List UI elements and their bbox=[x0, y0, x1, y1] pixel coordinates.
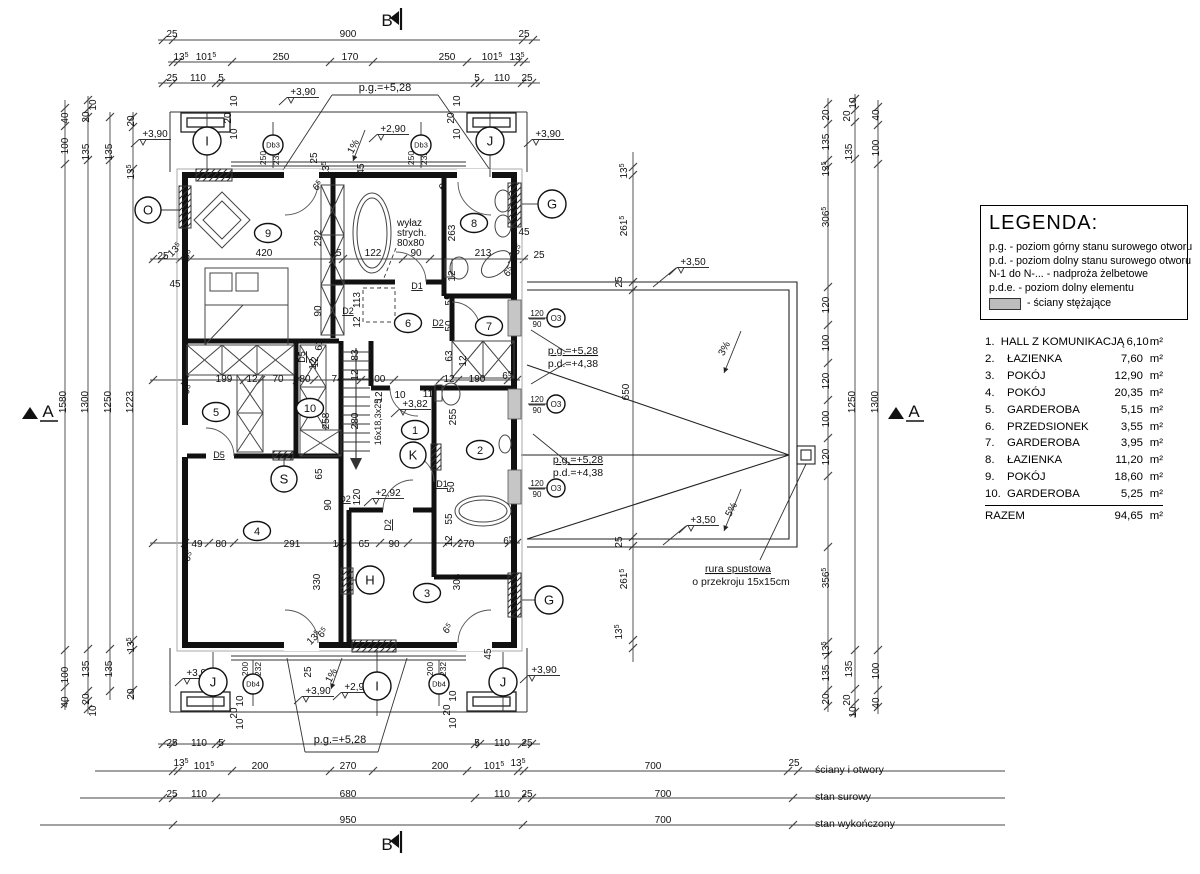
dim-label: 10 bbox=[235, 718, 246, 730]
dim-label: 650 bbox=[621, 383, 632, 400]
svg-text:B: B bbox=[381, 835, 392, 854]
dim-label: 200 bbox=[432, 761, 449, 772]
dim-label: stan wykończony bbox=[815, 818, 896, 830]
svg-text:J: J bbox=[487, 134, 494, 149]
dim-label: D2 bbox=[339, 494, 351, 504]
dim-label: 90 bbox=[313, 305, 324, 317]
dim-label: p.g.=+5,28 bbox=[314, 734, 367, 746]
bracing-walls-gray bbox=[508, 300, 521, 504]
dim-label: 45 bbox=[483, 648, 494, 660]
level-flag-icon bbox=[520, 676, 560, 684]
dim-label: +2,90 bbox=[380, 124, 406, 135]
room-number-9: 9 bbox=[255, 224, 282, 243]
dim-label: 90 bbox=[410, 248, 422, 259]
level-flag-icon bbox=[131, 140, 171, 148]
dim-label: 113 bbox=[352, 292, 363, 308]
dim-label: 15 bbox=[332, 539, 344, 550]
dim-label: 100 bbox=[871, 139, 882, 156]
dim-label: 90 bbox=[388, 539, 400, 550]
dim-label: 100 bbox=[821, 334, 832, 351]
svg-text:9: 9 bbox=[265, 228, 271, 240]
svg-text:8: 8 bbox=[471, 218, 477, 230]
dim-label: 250 bbox=[439, 52, 456, 63]
dim-label: 258 bbox=[321, 412, 332, 429]
dim-label: p.g.=+5,28 bbox=[553, 454, 603, 466]
svg-text:J: J bbox=[210, 675, 217, 690]
dim-label: 420 bbox=[256, 248, 273, 259]
dim-label: 1% bbox=[346, 138, 363, 156]
dim-label: 12 bbox=[444, 535, 455, 547]
dim-label: +3,50 bbox=[680, 257, 706, 268]
dim-label: 135 bbox=[510, 758, 525, 769]
dim-label: 135 bbox=[104, 660, 115, 677]
dim-label: 135 bbox=[844, 660, 855, 677]
room-number-10: 10 bbox=[297, 399, 324, 418]
dim-label: 1223 bbox=[125, 390, 136, 413]
dim-label: 20 bbox=[842, 694, 853, 706]
dim-label: 25 bbox=[166, 73, 178, 84]
level-flag-icon bbox=[391, 410, 431, 418]
dim-label: 120 bbox=[821, 296, 832, 313]
dim-label: 110 bbox=[191, 789, 207, 800]
dim-label: 12 bbox=[447, 270, 458, 282]
dim-label: 200 bbox=[425, 662, 435, 676]
svg-text:4: 4 bbox=[254, 526, 260, 538]
dim-label: 25 bbox=[521, 73, 533, 84]
dim-label: 55 bbox=[444, 513, 455, 525]
dim-label: 12 bbox=[443, 374, 455, 385]
svg-text:6: 6 bbox=[405, 318, 411, 330]
dim-label: 1300 bbox=[80, 390, 91, 413]
room-area-table: 1.HALL Z KOMUNIKACJĄ6,10m²2.ŁAZIENKA7,60… bbox=[985, 334, 1163, 525]
dim-label: +3,82 bbox=[402, 399, 428, 410]
svg-text:120: 120 bbox=[530, 309, 544, 318]
svg-text:B: B bbox=[381, 11, 392, 30]
dim-label: 25 bbox=[309, 152, 320, 164]
section-marker-b: B bbox=[381, 831, 401, 854]
dim-label: 5 bbox=[218, 73, 224, 84]
dim-label: 900 bbox=[340, 29, 357, 40]
table-row: 5.GARDEROBA5,15m² bbox=[985, 402, 1163, 419]
dim-label: 20 bbox=[229, 707, 240, 719]
svg-text:A: A bbox=[42, 402, 54, 421]
dim-label: 120 bbox=[821, 372, 832, 389]
svg-text:90: 90 bbox=[533, 490, 542, 499]
dim-label: 10 bbox=[88, 99, 99, 111]
marker-g: G bbox=[522, 586, 563, 614]
dim-label: 25 bbox=[788, 758, 800, 769]
dim-label: 3% bbox=[717, 340, 734, 358]
dim-label: 5 bbox=[474, 738, 480, 749]
dim-label: 20 bbox=[442, 704, 453, 716]
dim-label: 1015 bbox=[484, 761, 505, 772]
dim-label: 200 bbox=[252, 761, 269, 772]
svg-text:120: 120 bbox=[530, 395, 544, 404]
marker-o3: O312090 bbox=[528, 479, 565, 499]
dim-chain bbox=[629, 152, 637, 662]
dim-label: D1 bbox=[411, 281, 423, 291]
dim-label: 291 bbox=[284, 539, 301, 550]
dim-label: 74 bbox=[331, 374, 343, 385]
dim-label: 135 bbox=[509, 52, 524, 63]
svg-text:120: 120 bbox=[530, 479, 544, 488]
dim-label: 10 bbox=[452, 128, 463, 140]
marker-s: S bbox=[271, 457, 297, 492]
dim-label: 135 bbox=[619, 163, 630, 178]
dim-label: 55 bbox=[444, 294, 455, 306]
dim-label: 120 bbox=[821, 448, 832, 465]
dim-label: 330 bbox=[312, 573, 323, 590]
dim-label: 190 bbox=[469, 374, 486, 385]
dim-label: 303 bbox=[452, 573, 463, 590]
marker-o3: O312090 bbox=[528, 309, 565, 329]
dim-label: 80 bbox=[299, 374, 311, 385]
dim-label: 12 bbox=[246, 374, 258, 385]
svg-text:O3: O3 bbox=[551, 400, 562, 409]
dim-label: 5 bbox=[218, 738, 224, 749]
dim-label: 10 bbox=[448, 717, 459, 729]
dim-label: 10 bbox=[448, 690, 459, 702]
dim-label: 120 bbox=[352, 488, 363, 505]
dim-label: 292 bbox=[313, 229, 324, 246]
dim-label: 45 bbox=[356, 163, 367, 175]
dim-label: 80 bbox=[215, 539, 227, 550]
dim-label: 12 bbox=[458, 355, 469, 367]
svg-text:G: G bbox=[547, 197, 557, 212]
room-number-1: 1 bbox=[402, 421, 429, 440]
dim-label: 199 bbox=[216, 374, 233, 385]
dim-label: 25 bbox=[166, 29, 178, 40]
marker-o3: O312090 bbox=[528, 395, 565, 415]
total-label: RAZEM bbox=[985, 508, 1109, 525]
dim-label: 20 bbox=[126, 115, 137, 127]
dim-label: 20 bbox=[842, 110, 853, 122]
svg-text:H: H bbox=[365, 573, 374, 588]
dim-label: 135 bbox=[614, 624, 625, 639]
room-number-6: 6 bbox=[395, 314, 422, 333]
floor-plan-page: 2590025135101525017025010151352511055110… bbox=[0, 0, 1200, 874]
dim-label: 10 bbox=[848, 706, 859, 718]
dim-label: D5 bbox=[213, 450, 225, 460]
dim-label: 170 bbox=[342, 52, 359, 63]
dim-label: 20 bbox=[126, 688, 137, 700]
table-row: 6.PRZEDSIONEK3,55m² bbox=[985, 419, 1163, 436]
table-row: 8.ŁAZIENKA11,20m² bbox=[985, 452, 1163, 469]
section-marker-b: B bbox=[381, 8, 401, 30]
svg-text:5: 5 bbox=[213, 407, 219, 419]
dim-label: 110 bbox=[494, 73, 510, 84]
dim-label: 1015 bbox=[196, 52, 217, 63]
dim-label: 45 bbox=[169, 279, 181, 290]
dim-label: 2615 bbox=[619, 216, 630, 237]
dim-label: 100 bbox=[60, 137, 71, 154]
total-area: 94,65 bbox=[1109, 508, 1143, 525]
dim-label: 213 bbox=[475, 248, 492, 259]
dim-label: 255 bbox=[448, 408, 459, 425]
dim-label: 65 bbox=[358, 539, 370, 550]
dim-label: +2,92 bbox=[375, 488, 401, 499]
svg-text:90: 90 bbox=[533, 320, 542, 329]
dim-label: 90 bbox=[323, 499, 334, 511]
dim-label: 280 bbox=[350, 412, 361, 429]
dim-label: 110 bbox=[191, 738, 207, 749]
table-total-row: RAZEM 94,65 m² bbox=[985, 505, 1163, 525]
dim-label: 110 bbox=[494, 738, 510, 749]
dim-label: 25 bbox=[166, 738, 178, 749]
dim-label: 263 bbox=[447, 224, 458, 241]
dim-label: D2 bbox=[383, 519, 393, 531]
dim-label: ściany i otwory bbox=[815, 764, 885, 776]
dim-label: 70 bbox=[272, 374, 284, 385]
svg-text:7: 7 bbox=[486, 321, 492, 333]
table-row: 10.GARDEROBA5,25m² bbox=[985, 486, 1163, 503]
marker-o: O bbox=[135, 197, 180, 223]
svg-text:O3: O3 bbox=[551, 484, 562, 493]
svg-text:G: G bbox=[544, 593, 554, 608]
table-row: 9.POKÓJ18,60m² bbox=[985, 469, 1163, 486]
svg-text:O: O bbox=[143, 203, 153, 218]
dim-label: 40 bbox=[60, 112, 71, 124]
dim-label: D2 bbox=[432, 318, 444, 328]
dim-label: 1015 bbox=[482, 52, 503, 63]
dim-label: 12 bbox=[350, 369, 361, 381]
dim-label: +3,90 bbox=[531, 665, 557, 676]
room-number-3: 3 bbox=[414, 584, 441, 603]
svg-text:Db4: Db4 bbox=[246, 680, 260, 689]
dim-label: p.d.=+4,38 bbox=[548, 358, 598, 370]
dim-label: 122 bbox=[365, 248, 382, 259]
svg-text:I: I bbox=[375, 679, 379, 694]
svg-text:10: 10 bbox=[304, 403, 316, 415]
marker-g: G bbox=[522, 190, 566, 218]
dim-label: 680 bbox=[340, 789, 357, 800]
dim-label: 135 bbox=[821, 161, 832, 176]
dim-label: 25 bbox=[614, 276, 625, 288]
svg-text:S: S bbox=[280, 472, 289, 487]
dim-label: 40 bbox=[871, 697, 882, 709]
dim-label: p.g.=+5,28 bbox=[359, 82, 412, 94]
dim-label: 20 bbox=[446, 112, 457, 124]
dim-label: 20 bbox=[81, 693, 92, 705]
dim-label: +3,90 bbox=[535, 129, 561, 140]
level-flag-icon bbox=[524, 140, 564, 148]
svg-text:3: 3 bbox=[424, 588, 430, 600]
dim-label: 135 bbox=[821, 133, 832, 150]
dim-label: 3565 bbox=[821, 568, 832, 589]
dim-label: 100 bbox=[871, 662, 882, 679]
dim-label: 83 bbox=[350, 349, 361, 361]
room-number-5: 5 bbox=[203, 403, 230, 422]
legend-line: p.g. - poziom górny stanu surowego otwor… bbox=[989, 241, 1179, 255]
dim-chain bbox=[824, 98, 832, 712]
legend-swatch-label: - ściany stężające bbox=[1027, 297, 1111, 311]
dim-label: +3,90 bbox=[142, 129, 168, 140]
dim-label: 25 bbox=[518, 29, 530, 40]
svg-text:O3: O3 bbox=[551, 314, 562, 323]
dim-label: 25 bbox=[533, 250, 545, 261]
svg-text:1: 1 bbox=[412, 425, 418, 437]
dim-label: 25 bbox=[521, 789, 533, 800]
dim-label: 135 bbox=[173, 758, 188, 769]
svg-text:I: I bbox=[205, 134, 209, 149]
svg-text:K: K bbox=[409, 448, 418, 463]
dim-label: stan surowy bbox=[815, 791, 872, 803]
dim-label: 25 bbox=[166, 789, 178, 800]
dim-label: 10 bbox=[848, 97, 859, 109]
dim-label: 65 bbox=[441, 622, 456, 637]
room-number-4: 4 bbox=[244, 522, 271, 541]
dim-label: 700 bbox=[655, 789, 672, 800]
dim-label: 61 bbox=[314, 339, 325, 351]
svg-text:Db3: Db3 bbox=[266, 141, 280, 150]
table-row: 2.ŁAZIENKA7,60m² bbox=[985, 351, 1163, 368]
svg-text:J: J bbox=[500, 675, 507, 690]
dim-label: 45 bbox=[518, 227, 530, 238]
dim-label: 25 bbox=[521, 738, 533, 749]
table-row: 4.POKÓJ20,35m² bbox=[985, 385, 1163, 402]
dim-label: 25 bbox=[614, 536, 625, 548]
dim-label: 63 bbox=[444, 350, 455, 362]
dim-label: 15 bbox=[330, 248, 342, 259]
dim-label: 3065 bbox=[821, 207, 832, 228]
room-table-rows: 1.HALL Z KOMUNIKACJĄ6,10m²2.ŁAZIENKA7,60… bbox=[985, 334, 1163, 503]
dim-label: 20 bbox=[821, 109, 832, 121]
dim-label: 50 bbox=[446, 481, 457, 493]
dim-label: p.g.=+5,28 bbox=[548, 345, 598, 357]
room-number-2: 2 bbox=[467, 441, 494, 460]
dim-label: 80x80 bbox=[397, 238, 425, 249]
dim-label: 1250 bbox=[103, 390, 114, 413]
dim-label: 270 bbox=[458, 539, 475, 550]
dim-label: 950 bbox=[340, 815, 357, 826]
section-marker-a: A bbox=[22, 402, 58, 421]
dim-label: 135 bbox=[81, 143, 92, 160]
marker-k: K bbox=[400, 442, 426, 468]
svg-text:Db4: Db4 bbox=[432, 680, 446, 689]
dim-label: 1250 bbox=[847, 390, 858, 413]
dim-label: 1015 bbox=[194, 761, 215, 772]
dim-label: 135 bbox=[821, 664, 832, 681]
svg-text:A: A bbox=[908, 402, 920, 421]
dim-label: 40 bbox=[60, 696, 71, 708]
table-row: 1.HALL Z KOMUNIKACJĄ6,10m² bbox=[985, 334, 1163, 351]
dim-label: 12 bbox=[352, 316, 363, 328]
dim-label: +3,90 bbox=[305, 686, 331, 697]
legend-line: p.d. - poziom dolny stanu surowego otwor… bbox=[989, 255, 1179, 269]
dim-label: 1300 bbox=[870, 390, 881, 413]
dim-label: rura spustowa bbox=[705, 563, 771, 575]
dim-label: 10 bbox=[229, 95, 240, 107]
legend: LEGENDA: p.g. - poziom górny stanu surow… bbox=[980, 205, 1188, 320]
dim-label: 100 bbox=[60, 666, 71, 683]
dim-label: 700 bbox=[645, 761, 662, 772]
level-flag-icon bbox=[369, 135, 409, 143]
level-flag-icon bbox=[279, 98, 319, 106]
dim-label: 100 bbox=[369, 374, 386, 385]
dim-label: 135 bbox=[844, 143, 855, 160]
dim-label: 135 bbox=[81, 660, 92, 677]
marker-h: H bbox=[350, 566, 384, 594]
dim-label: 10 bbox=[235, 695, 246, 707]
dim-label: 40 bbox=[871, 109, 882, 121]
stairs bbox=[342, 348, 370, 470]
legend-line: N-1 do N-... - nadproża żelbetowe bbox=[989, 268, 1179, 282]
dim-label: 135 bbox=[173, 52, 188, 63]
dim-label: 16x18,3x25 bbox=[373, 399, 383, 446]
table-row: 3.POKÓJ12,90m² bbox=[985, 368, 1163, 385]
dim-label: 5 bbox=[474, 73, 480, 84]
dim-label: p.d.=+4,38 bbox=[553, 467, 603, 479]
roof-outline bbox=[521, 282, 815, 547]
dim-label: 5% bbox=[724, 501, 741, 519]
dim-label: 270 bbox=[340, 761, 357, 772]
svg-text:90: 90 bbox=[533, 406, 542, 415]
dim-label: 20 bbox=[81, 111, 92, 123]
legend-title: LEGENDA: bbox=[989, 212, 1179, 235]
dim-label: 25 bbox=[303, 666, 314, 678]
dim-label: o przekroju 15x15cm bbox=[692, 576, 790, 588]
dim-label: 1580 bbox=[58, 390, 69, 413]
dim-label: 135 bbox=[821, 641, 832, 656]
dim-label: 65 bbox=[437, 179, 452, 194]
level-flag-icon bbox=[294, 697, 334, 705]
dim-label: 135 bbox=[321, 161, 332, 176]
dim-label: 50 bbox=[444, 320, 455, 332]
dim-label: 10 bbox=[229, 128, 240, 140]
dim-label: 20 bbox=[821, 693, 832, 705]
table-row: 7.GARDEROBA3,95m² bbox=[985, 435, 1163, 452]
total-unit: m² bbox=[1143, 508, 1163, 525]
dim-label: 110 bbox=[190, 73, 206, 84]
dim-label: +3,50 bbox=[690, 515, 716, 526]
dim-label: +3,90 bbox=[290, 87, 316, 98]
dim-label: D5 bbox=[297, 351, 307, 363]
room-number-7: 7 bbox=[476, 317, 503, 336]
bracing-wall-swatch-icon bbox=[989, 298, 1021, 310]
dim-label: 100 bbox=[821, 410, 832, 427]
dim-label: 135 bbox=[126, 637, 137, 652]
dim-label: 12 bbox=[308, 358, 319, 370]
dim-label: 20 bbox=[223, 112, 234, 124]
dim-label: 110 bbox=[494, 789, 510, 800]
svg-text:Db3: Db3 bbox=[414, 141, 428, 150]
dim-label: 2615 bbox=[619, 569, 630, 590]
dim-label: 65 bbox=[314, 468, 325, 480]
dim-label: 700 bbox=[655, 815, 672, 826]
dim-label: 10 bbox=[88, 705, 99, 717]
dim-label: 49 bbox=[191, 539, 203, 550]
dim-label: 10 bbox=[452, 95, 463, 107]
dim-label: 200 bbox=[240, 662, 250, 676]
room-number-8: 8 bbox=[461, 214, 488, 233]
svg-text:2: 2 bbox=[477, 445, 483, 457]
dim-chain bbox=[158, 79, 540, 87]
legend-line: p.d.e. - poziom dolny elementu bbox=[989, 282, 1179, 296]
dim-label: 135 bbox=[104, 143, 115, 160]
section-marker-a: A bbox=[888, 402, 924, 421]
dim-label: 250 bbox=[273, 52, 290, 63]
